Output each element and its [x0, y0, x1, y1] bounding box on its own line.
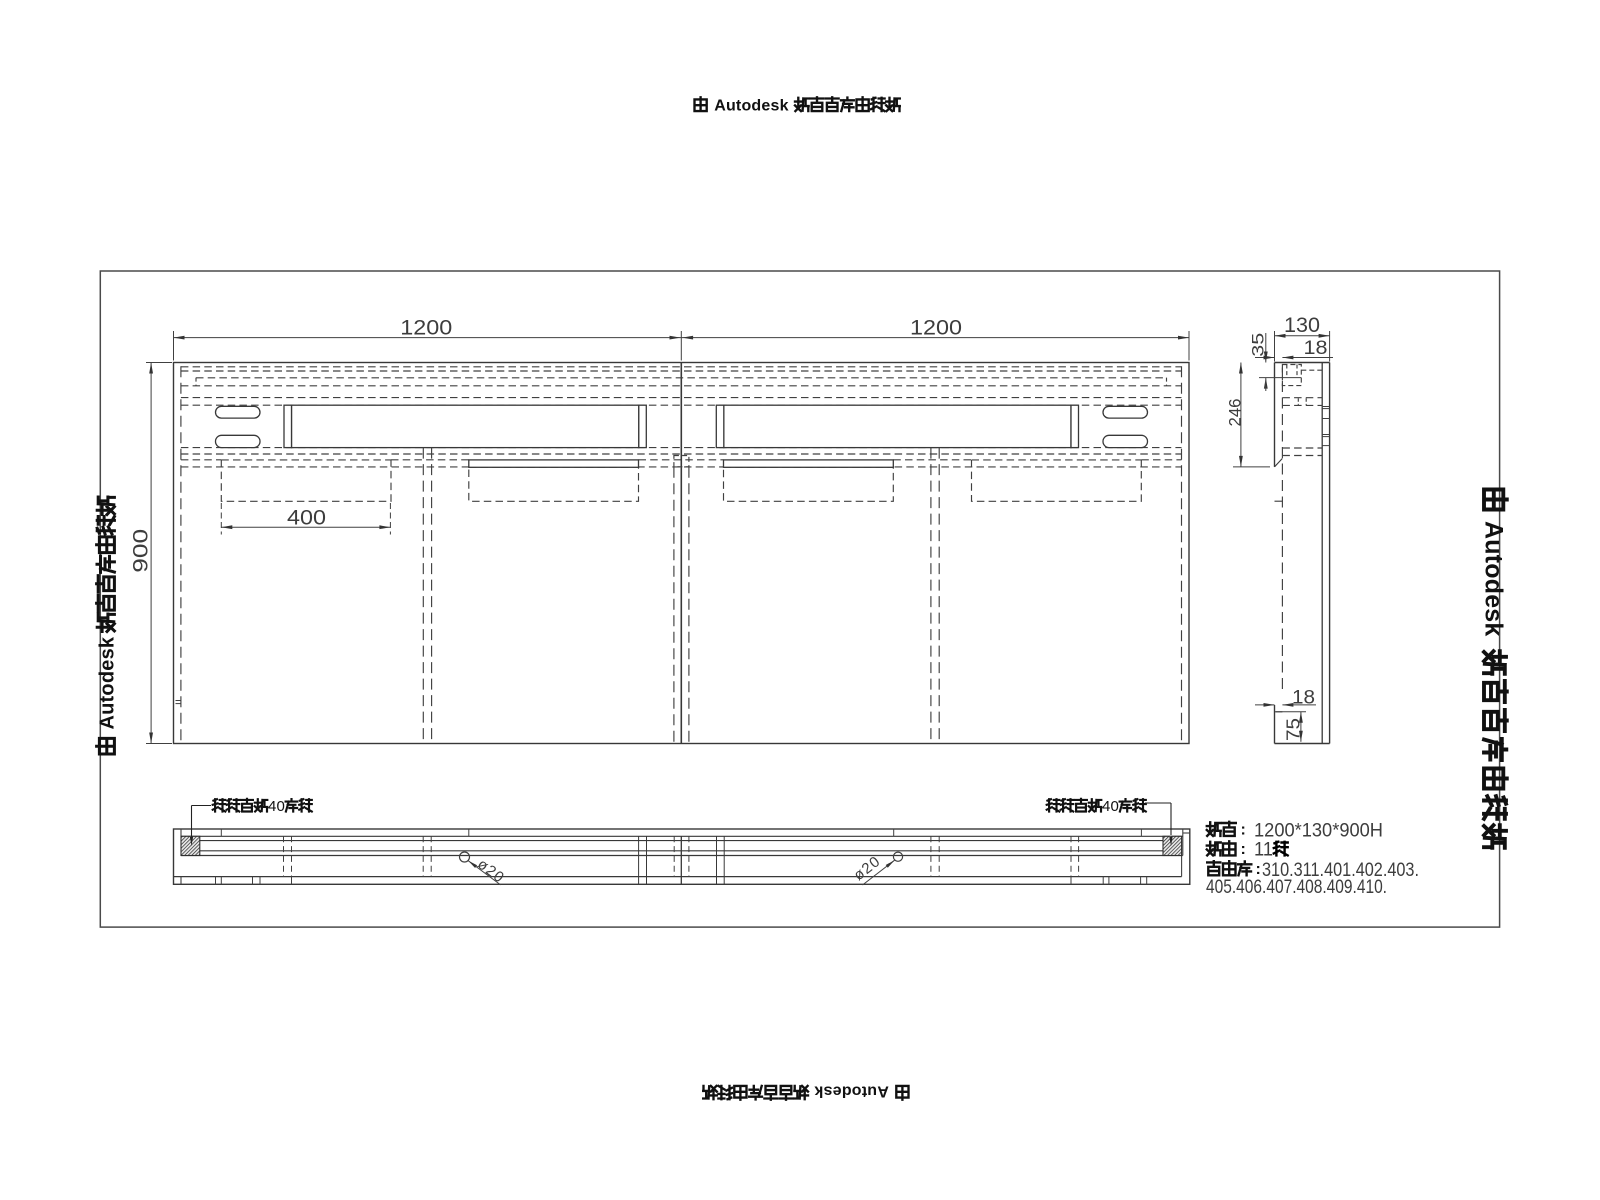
- svg-text:130: 130: [1284, 314, 1320, 337]
- svg-text:400: 400: [287, 507, 326, 530]
- svg-text:75: 75: [1284, 718, 1304, 741]
- svg-text:40: 40: [268, 798, 285, 815]
- svg-text:Autodesk: Autodesk: [1479, 521, 1507, 637]
- svg-text:35: 35: [1248, 333, 1267, 357]
- svg-text::: :: [1241, 841, 1246, 858]
- svg-text:Autodesk: Autodesk: [714, 97, 789, 114]
- svg-text:1200: 1200: [400, 317, 452, 340]
- svg-text:246: 246: [1225, 399, 1244, 427]
- svg-text:18: 18: [1292, 688, 1315, 709]
- svg-text:Autodesk: Autodesk: [96, 636, 118, 729]
- svg-text::: :: [1241, 822, 1246, 839]
- svg-text:1200*130*900H: 1200*130*900H: [1254, 820, 1383, 841]
- svg-text:405.406.407.408.409.410.: 405.406.407.408.409.410.: [1206, 877, 1387, 898]
- svg-text:Autodesk: Autodesk: [814, 1083, 889, 1100]
- svg-text:18: 18: [1304, 338, 1328, 359]
- svg-text:40: 40: [1102, 798, 1119, 815]
- svg-text:1200: 1200: [910, 317, 962, 340]
- svg-text::: :: [1256, 861, 1261, 878]
- svg-text:11: 11: [1254, 840, 1273, 861]
- svg-text:900: 900: [130, 529, 153, 573]
